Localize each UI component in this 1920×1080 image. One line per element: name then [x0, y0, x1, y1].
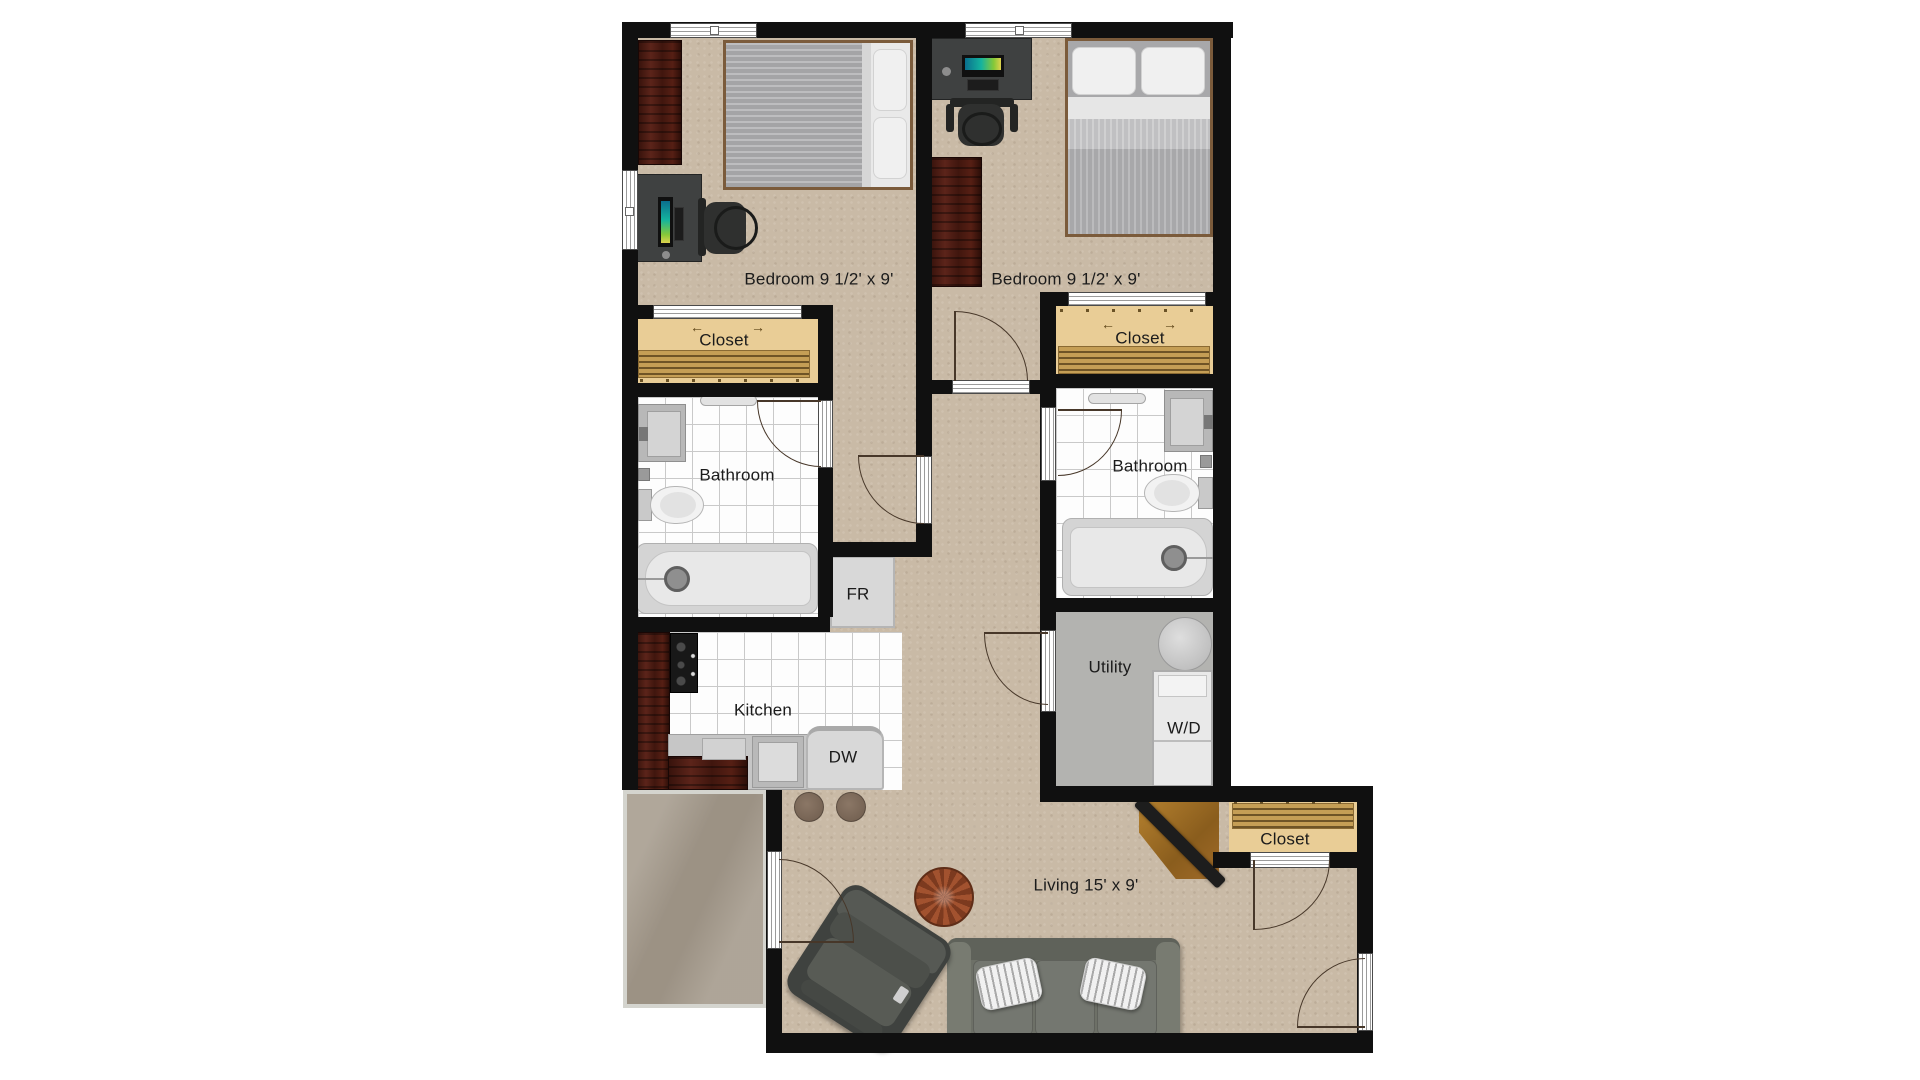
closet-shelf-icon — [638, 350, 810, 378]
bathtub-icon — [636, 543, 818, 614]
closet-shelf-dots — [640, 379, 808, 382]
door-frame — [952, 380, 1030, 394]
wall — [916, 38, 932, 456]
dresser-icon — [638, 40, 682, 165]
chair-base-ring — [962, 112, 1002, 146]
pillow-icon — [1072, 47, 1136, 95]
sink-basin — [647, 411, 681, 457]
toilet-icon — [1144, 474, 1213, 512]
monitor-screen — [965, 58, 1001, 70]
sliding-door-track — [1068, 292, 1206, 306]
desk-icon — [636, 174, 702, 262]
bathtub-drain-icon — [1161, 545, 1187, 571]
bar-stool-icon — [794, 792, 824, 822]
stove-cooktop-icon — [670, 633, 698, 693]
sliding-door-arrow-left: ← — [1101, 317, 1115, 331]
sliding-door-arrow-right: → — [1163, 317, 1177, 331]
closet-shelf-icon — [1058, 346, 1210, 374]
desk-icon — [930, 38, 1032, 100]
bathtub-faucet-stem — [637, 578, 667, 580]
sink-drainboard — [702, 738, 746, 760]
wall — [622, 38, 638, 790]
bed-duvet — [1068, 149, 1210, 234]
bed-icon — [723, 40, 913, 190]
wall — [1213, 22, 1231, 802]
faucet-icon — [639, 427, 648, 441]
sliding-door-track — [653, 305, 802, 319]
toilet-seat — [660, 492, 696, 518]
pillow-icon — [873, 117, 907, 179]
keyboard-icon — [967, 79, 999, 91]
bathtub-drain-icon — [664, 566, 690, 592]
office-chair-icon — [946, 96, 1018, 148]
coffee-table-icon — [914, 867, 974, 927]
kitchen-sink-icon — [752, 736, 804, 788]
room-label-bedroom-right: Bedroom 9 1/2' x 9' — [991, 271, 1140, 288]
bed-icon — [1065, 38, 1213, 237]
door-frame — [1041, 407, 1056, 481]
sink-basin — [758, 742, 798, 782]
room-label-living: Living 15' x 9' — [1034, 877, 1139, 894]
wall — [1040, 374, 1213, 388]
bathtub-icon — [1062, 518, 1213, 596]
chair-base-ring — [714, 206, 758, 250]
sofa-icon — [947, 938, 1180, 1042]
toilet-tank — [1198, 477, 1213, 509]
sink-vanity-icon — [638, 404, 686, 462]
mouse-icon — [662, 251, 670, 259]
chair-armrest — [946, 104, 954, 132]
room-label-bedroom-left: Bedroom 9 1/2' x 9' — [744, 271, 893, 288]
room-label-closet-left: Closet — [699, 332, 748, 349]
water-heater-icon — [1158, 617, 1212, 671]
wall — [818, 319, 833, 617]
wall — [622, 617, 830, 632]
pillow-icon — [1141, 47, 1205, 95]
wall — [1040, 598, 1231, 612]
office-chair-icon — [696, 194, 754, 260]
fridge-label: FR — [846, 586, 869, 603]
toilet-paper-holder-icon — [1200, 455, 1212, 468]
window-handle — [625, 207, 634, 216]
wall — [766, 1033, 1373, 1053]
sofa-armrest — [1156, 942, 1180, 1040]
window — [965, 23, 1072, 38]
chair-armrest — [1010, 104, 1018, 132]
wall — [818, 542, 932, 557]
dishwasher-label: DW — [829, 749, 858, 766]
window-handle — [1015, 26, 1024, 35]
room-label-utility: Utility — [1089, 659, 1132, 676]
sink-basin — [1170, 398, 1204, 446]
bed-duvet — [726, 43, 864, 187]
kitchen-cabinet-icon — [668, 756, 748, 790]
kitchen-cabinet-icon — [636, 632, 670, 790]
window — [670, 23, 757, 38]
bed-sheet-fold — [862, 43, 871, 187]
bathtub-faucet-stem — [1185, 557, 1214, 559]
dresser-icon — [930, 157, 982, 287]
bar-stool-icon — [836, 792, 866, 822]
room-label-closet-right: Closet — [1115, 330, 1164, 347]
wall — [1040, 786, 1373, 802]
sofa-back — [947, 938, 1180, 960]
keyboard-icon — [674, 207, 684, 241]
washer-dryer-label: W/D — [1167, 720, 1201, 737]
toilet-seat — [1154, 480, 1190, 506]
room-label-kitchen: Kitchen — [734, 702, 792, 719]
closet-shelf-dots — [1060, 309, 1208, 312]
window — [622, 170, 638, 250]
room-label-closet-entry: Closet — [1260, 831, 1309, 848]
washer-drawer — [1158, 675, 1207, 697]
patio — [623, 790, 767, 1008]
room-label-bathroom-right: Bathroom — [1112, 458, 1187, 475]
toilet-paper-holder-icon — [638, 468, 650, 481]
sliding-door-arrow-right: → — [751, 320, 765, 334]
monitor-screen — [661, 201, 670, 243]
mouse-icon — [942, 67, 951, 76]
sink-vanity-icon — [1164, 390, 1213, 452]
toilet-icon — [638, 486, 704, 524]
bed-duvet-band — [1068, 119, 1210, 149]
faucet-icon — [1204, 415, 1213, 429]
window-handle — [710, 26, 719, 35]
unit-divider — [1154, 740, 1211, 742]
closet-shelf-icon — [1232, 803, 1354, 829]
room-label-bathroom-left: Bathroom — [699, 467, 774, 484]
floorplan-canvas: Bedroom 9 1/2' x 9' Bedroom 9 1/2' x 9' … — [0, 0, 1920, 1080]
wall — [622, 383, 833, 397]
hall-upper-floor — [932, 394, 1056, 560]
pillow-icon — [873, 49, 907, 111]
bed-sheet — [1068, 97, 1210, 119]
towel-bar-icon — [1088, 393, 1146, 404]
